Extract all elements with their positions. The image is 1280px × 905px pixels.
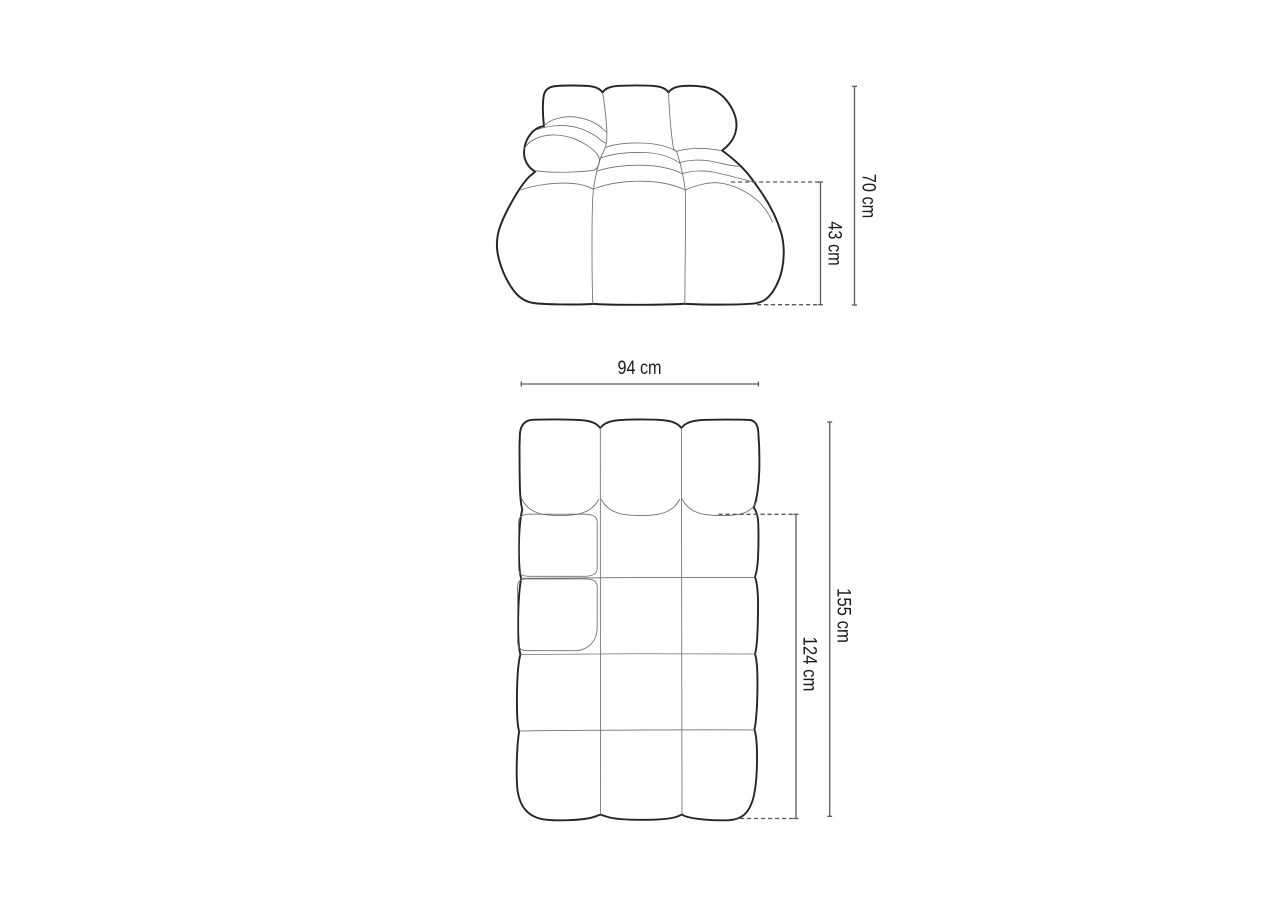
svg-text:155 cm: 155 cm [833, 588, 855, 643]
svg-text:124 cm: 124 cm [799, 637, 821, 692]
svg-text:43 cm: 43 cm [824, 221, 846, 266]
svg-text:94 cm: 94 cm [618, 357, 662, 379]
svg-text:70 cm: 70 cm [858, 174, 880, 219]
